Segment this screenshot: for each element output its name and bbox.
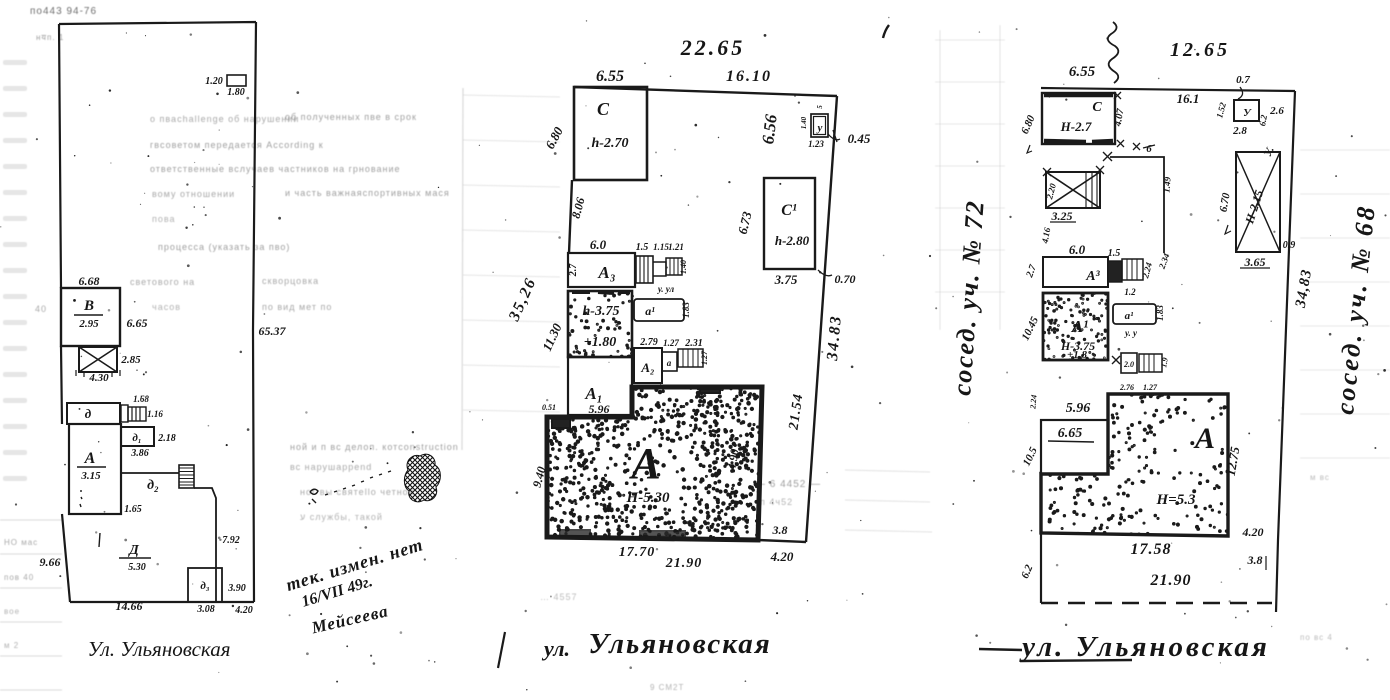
svg-text:гвсоветом передается According: гвсоветом передается According к bbox=[150, 140, 324, 150]
svg-text:1.80: 1.80 bbox=[227, 87, 245, 98]
svg-text:д₃: д₃ bbox=[200, 580, 209, 592]
svg-text:6.0: 6.0 bbox=[590, 237, 607, 252]
svg-text:2.24: 2.24 bbox=[1140, 261, 1154, 280]
svg-text:2.8: 2.8 bbox=[1232, 125, 1247, 137]
svg-text:1.49: 1.49 bbox=[1161, 176, 1172, 193]
svg-text:34,83: 34,83 bbox=[1293, 268, 1316, 310]
svg-text:1.9: 1.9 bbox=[1159, 357, 1170, 368]
svg-text:14.66: 14.66 bbox=[116, 599, 143, 613]
svg-text:… 4557: … 4557 bbox=[540, 592, 578, 602]
svg-text:и часть важнаяспортивных мася: и часть важнаяспортивных мася bbox=[285, 188, 450, 198]
svg-text:6.80: 6.80 bbox=[542, 124, 566, 152]
svg-text:1.21: 1.21 bbox=[668, 242, 684, 252]
svg-text:А³: А³ bbox=[1085, 269, 1100, 284]
svg-text:12.65: 12.65 bbox=[1170, 39, 1230, 61]
svg-text:а¹: а¹ bbox=[1125, 310, 1134, 322]
svg-text:16.1: 16.1 bbox=[1177, 91, 1200, 106]
svg-text:0.45: 0.45 bbox=[848, 131, 871, 146]
svg-text:НО мас: НО мас bbox=[4, 538, 38, 547]
svg-text:1.40: 1.40 bbox=[800, 116, 808, 129]
svg-text:1.15: 1.15 bbox=[653, 242, 669, 252]
svg-text:С: С bbox=[1092, 100, 1102, 115]
svg-text:5: 5 bbox=[816, 105, 824, 109]
svg-text:9.66: 9.66 bbox=[40, 555, 61, 569]
svg-text:вому отношении: вому отношении bbox=[152, 189, 235, 199]
svg-text:В: В bbox=[83, 298, 94, 314]
svg-text:+1.80: +1.80 bbox=[584, 335, 616, 350]
svg-text:6.73: 6.73 bbox=[735, 210, 755, 236]
svg-text:Мейсеева: Мейсеева bbox=[309, 601, 391, 637]
svg-text:по вид мет по: по вид мет по bbox=[262, 302, 332, 312]
svg-text:3.86: 3.86 bbox=[130, 448, 149, 459]
svg-text:10.5: 10.5 bbox=[1021, 445, 1040, 468]
svg-text:1.27: 1.27 bbox=[700, 350, 709, 365]
svg-text:6: 6 bbox=[1146, 143, 1152, 155]
svg-text:у. ул: у. ул bbox=[657, 284, 675, 294]
svg-text:А: А bbox=[1193, 422, 1215, 455]
svg-text:6.55: 6.55 bbox=[1069, 64, 1096, 80]
svg-text:5.30: 5.30 bbox=[128, 562, 146, 573]
svg-text:а: а bbox=[667, 358, 672, 368]
svg-text:6.65: 6.65 bbox=[1058, 426, 1083, 441]
svg-text:2.7: 2.7 bbox=[1024, 262, 1039, 279]
svg-text:Н-2.15: Н-2.15 bbox=[1242, 188, 1266, 226]
svg-text:2.34: 2.34 bbox=[1156, 251, 1171, 271]
svg-text:11.30: 11.30 bbox=[539, 321, 565, 354]
svg-text:1.2: 1.2 bbox=[1124, 287, 1136, 297]
svg-text:А: А bbox=[628, 439, 660, 488]
svg-text:а¹: а¹ bbox=[645, 304, 655, 318]
svg-text:17.70: 17.70 bbox=[619, 545, 656, 560]
svg-text:скворцовка: скворцовка bbox=[262, 276, 319, 286]
svg-text:h-2.80: h-2.80 bbox=[775, 233, 810, 248]
svg-text:35,26: 35,26 bbox=[505, 275, 540, 325]
svg-text:0.7: 0.7 bbox=[1236, 74, 1250, 86]
svg-text:0.51: 0.51 bbox=[542, 403, 556, 412]
svg-text:4.20: 4.20 bbox=[234, 605, 253, 616]
svg-text:м 2: м 2 bbox=[4, 641, 19, 650]
svg-text:сосед. уч. № 68: сосед. уч. № 68 bbox=[1330, 202, 1381, 415]
svg-text:10.45: 10.45 bbox=[1019, 314, 1041, 342]
svg-text:4.07: 4.07 bbox=[1112, 107, 1126, 128]
svg-text:1.40: 1.40 bbox=[679, 260, 688, 274]
svg-text:4.30: 4.30 bbox=[88, 372, 109, 384]
svg-text:6.65: 6.65 bbox=[127, 316, 148, 330]
svg-text:ע службы, такой: ע службы, такой bbox=[300, 512, 383, 522]
svg-text:у: у bbox=[816, 122, 823, 134]
svg-text:А₃: А₃ bbox=[597, 263, 615, 282]
svg-text:ул.: ул. bbox=[541, 636, 570, 661]
svg-text:5.96: 5.96 bbox=[589, 402, 610, 416]
svg-text:3.75: 3.75 bbox=[774, 272, 798, 287]
svg-text:У.: У. bbox=[1262, 145, 1277, 159]
svg-text:3.65: 3.65 bbox=[1244, 255, 1266, 269]
svg-text:2.7: 2.7 bbox=[568, 263, 579, 278]
svg-text:9 СМ2Т: 9 СМ2Т bbox=[650, 683, 684, 692]
svg-text:4.20: 4.20 bbox=[770, 549, 794, 564]
svg-text:3.8: 3.8 bbox=[772, 523, 788, 537]
svg-text:21.90: 21.90 bbox=[665, 556, 703, 571]
svg-text:6.2: 6.2 bbox=[1019, 563, 1036, 581]
svg-text:Д: Д bbox=[127, 543, 139, 558]
svg-text:3.15: 3.15 bbox=[80, 470, 101, 482]
svg-text:4.16: 4.16 bbox=[1040, 226, 1053, 245]
svg-text:6.70: 6.70 bbox=[1217, 191, 1232, 213]
svg-text:h-2.70: h-2.70 bbox=[592, 136, 629, 151]
svg-text:д₁: д₁ bbox=[132, 432, 141, 444]
svg-text:2.24: 2.24 bbox=[1028, 394, 1038, 410]
svg-text:6.2: 6.2 bbox=[1257, 114, 1269, 127]
svg-text:д₂: д₂ bbox=[147, 478, 159, 493]
svg-text:34.83: 34.83 bbox=[824, 314, 845, 362]
svg-text:об полученных пве в срок: об полученных пве в срок bbox=[285, 112, 417, 122]
svg-text:21.90: 21.90 bbox=[1150, 572, 1192, 589]
svg-text:Ульяновская: Ульяновская bbox=[588, 628, 771, 660]
svg-text:А¹: А¹ bbox=[1071, 317, 1088, 336]
svg-text:3.90: 3.90 bbox=[227, 583, 246, 594]
svg-text:д: д bbox=[85, 406, 92, 421]
svg-text:2.0: 2.0 bbox=[1123, 360, 1134, 369]
svg-text:п 4ч52: п 4ч52 bbox=[760, 497, 793, 507]
svg-text:часов: часов bbox=[152, 302, 181, 312]
svg-text:7.92: 7.92 bbox=[222, 535, 240, 546]
svg-text:по вс 4: по вс 4 bbox=[1300, 633, 1333, 642]
svg-text:1.65: 1.65 bbox=[124, 504, 142, 515]
svg-text:процесса (указать за пво): процесса (указать за пво) bbox=[158, 242, 290, 252]
svg-text:1.83: 1.83 bbox=[1155, 305, 1165, 321]
svg-text:ной и п вс делоп. котconstruct: ной и п вс делоп. котconstruction bbox=[290, 442, 459, 452]
svg-text:ответственные вслучаев частник: ответственные вслучаев частников на грно… bbox=[150, 164, 401, 174]
svg-text:1.16: 1.16 bbox=[147, 409, 163, 419]
svg-text:h-3.75: h-3.75 bbox=[583, 304, 620, 319]
svg-text:2.85: 2.85 bbox=[120, 354, 141, 366]
svg-text:2.18: 2.18 bbox=[157, 433, 176, 444]
svg-text:пов 40: пов 40 bbox=[4, 573, 34, 582]
svg-text:о пваchallenge об нарушении: о пваchallenge об нарушении bbox=[150, 114, 299, 124]
svg-text:16.10: 16.10 bbox=[726, 68, 772, 85]
svg-text:светового на: светового на bbox=[130, 277, 195, 287]
svg-text:пова: пова bbox=[152, 214, 176, 224]
svg-text:1.83: 1.83 bbox=[681, 302, 691, 318]
svg-text:А₁: А₁ bbox=[584, 384, 602, 403]
svg-text:0.70: 0.70 bbox=[835, 272, 856, 286]
svg-text:3.08: 3.08 bbox=[196, 604, 215, 615]
svg-text:вс нарушappend: вс нарушappend bbox=[290, 462, 372, 472]
svg-text:+1.8: +1.8 bbox=[1067, 349, 1088, 361]
svg-text:2.6: 2.6 bbox=[1269, 105, 1284, 117]
svg-text:4.20: 4.20 bbox=[1242, 525, 1264, 539]
svg-text:1.52: 1.52 bbox=[1214, 101, 1228, 119]
svg-text:17.58: 17.58 bbox=[1131, 541, 1172, 558]
svg-text:м вс: м вс bbox=[1310, 473, 1330, 482]
svg-text:Ул. Ульяновская: Ул. Ульяновская bbox=[88, 637, 231, 661]
svg-text:У: У bbox=[1243, 107, 1252, 119]
svg-text:С: С bbox=[597, 99, 610, 119]
svg-text:1.27: 1.27 bbox=[663, 338, 679, 348]
svg-text:2.79: 2.79 bbox=[639, 337, 658, 348]
svg-text:1.23: 1.23 bbox=[808, 139, 824, 149]
svg-text:у. у: у. у bbox=[1124, 328, 1138, 338]
svg-text:40: 40 bbox=[35, 304, 47, 314]
svg-text:21.54: 21.54 bbox=[786, 392, 806, 431]
svg-text:2.76: 2.76 bbox=[1119, 383, 1134, 392]
svg-text:С¹: С¹ bbox=[781, 202, 797, 219]
svg-text:3.25: 3.25 bbox=[1051, 209, 1073, 223]
svg-text:6.68: 6.68 bbox=[79, 274, 100, 288]
svg-text:6.80: 6.80 bbox=[1019, 113, 1038, 136]
svg-text:5.96: 5.96 bbox=[1066, 401, 1091, 416]
svg-text:6.55: 6.55 bbox=[596, 68, 624, 85]
svg-text:1.5: 1.5 bbox=[1108, 248, 1121, 259]
svg-text:3.8: 3.8 bbox=[1247, 553, 1263, 567]
svg-text:6.0: 6.0 bbox=[1069, 242, 1086, 257]
svg-text:Н-2.7: Н-2.7 bbox=[1060, 119, 1092, 134]
svg-text:1.5: 1.5 bbox=[636, 242, 649, 253]
svg-text:2.31: 2.31 bbox=[684, 338, 703, 349]
svg-text:по443 94-76: по443 94-76 bbox=[30, 6, 97, 17]
svg-text:ул. Ульяновская: ул. Ульяновская bbox=[1019, 631, 1270, 663]
svg-text:1.27: 1.27 bbox=[1143, 383, 1158, 392]
svg-text:Н=5.3: Н=5.3 bbox=[1156, 492, 1196, 508]
svg-text:1.20: 1.20 bbox=[205, 76, 223, 87]
svg-text:6.56: 6.56 bbox=[758, 113, 781, 145]
svg-text:0.9: 0.9 bbox=[1283, 240, 1296, 251]
svg-text:1.68: 1.68 bbox=[133, 394, 149, 404]
svg-text:65.37: 65.37 bbox=[259, 324, 287, 338]
svg-text:вое: вое bbox=[4, 607, 20, 616]
svg-text:А: А bbox=[84, 450, 96, 467]
svg-text:А₂: А₂ bbox=[640, 360, 654, 375]
svg-text:Н-5.30: Н-5.30 bbox=[626, 490, 670, 506]
svg-text:22.65: 22.65 bbox=[680, 35, 746, 60]
svg-text:сосед. уч. № 72: сосед. уч. № 72 bbox=[947, 198, 990, 396]
svg-text:2.95: 2.95 bbox=[78, 318, 99, 330]
